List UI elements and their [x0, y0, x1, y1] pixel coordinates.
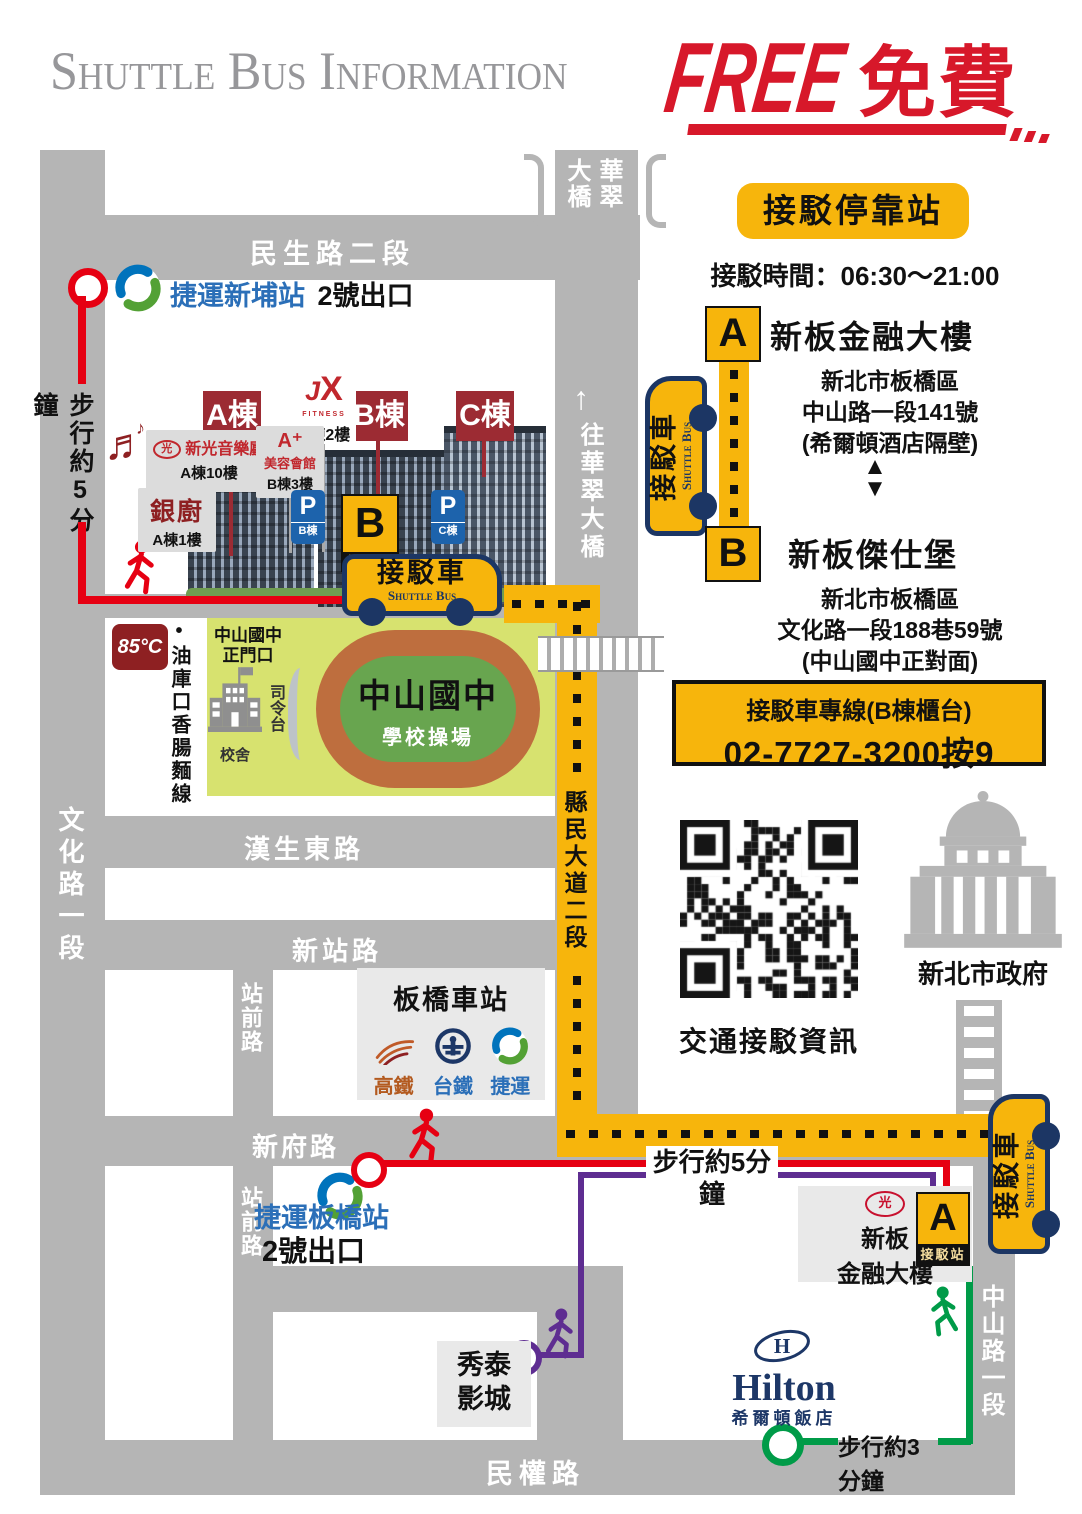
silver-kitchen-label: 銀廚 A棟1樓	[138, 488, 216, 552]
sign-stem	[482, 441, 486, 477]
route-dots	[573, 602, 581, 786]
tower-c-sign: C棟	[456, 391, 514, 441]
walk-5min-mid-label: 步行約5分鐘	[646, 1146, 778, 1178]
sausage-shop-label: •油庫口香腸麵線	[162, 620, 194, 820]
panel-stop-a-sign: A	[705, 306, 761, 362]
bridge-label-left: 大橋	[566, 158, 594, 216]
route-green-end	[762, 1424, 804, 1466]
banqiao-station-box: 板橋車站 高鐵 台鐵 捷運	[357, 968, 545, 1100]
to-bridge-label: 往華翠大橋	[577, 422, 607, 580]
mrt-xinpu-row: 捷運新埔站 2號出口	[170, 274, 413, 313]
stop-b-addr3: (中山國中正對面)	[740, 646, 1040, 677]
hsr-label: 高鐵	[372, 1070, 416, 1099]
mrt-xinpu-exit: 2號出口	[317, 281, 413, 311]
route-purple	[584, 1172, 646, 1178]
mrt-banqiao-exit: 2號出口	[262, 1228, 402, 1270]
school-stage-label: 司令台	[267, 684, 287, 758]
road-label-zhanqian-1: 站前路	[242, 982, 266, 1066]
route-purple	[778, 1172, 936, 1178]
silver-kitchen-name: 銀廚	[138, 492, 216, 528]
jx-logo-j: J	[305, 376, 320, 406]
hotline-box: 接駁車專線(B棟櫃台) 02-7727-3200按9	[672, 680, 1046, 766]
panel-stop-a-address: 新北市板橋區 中山路一段141號 (希爾頓酒店隔壁)	[750, 366, 1030, 459]
road-label-wenhua: 文化路一段	[57, 806, 89, 996]
route-green	[938, 1438, 971, 1445]
parking-sign-b: P B棟	[291, 490, 325, 544]
bus-label: 接駁車 Shuttle Bus	[994, 1094, 1036, 1254]
metro-item: 捷運	[490, 1027, 530, 1099]
stop-b-addr1: 新北市板橋區	[740, 584, 1040, 615]
route-dots	[566, 1130, 1008, 1138]
xiutai-line2: 影城	[437, 1383, 531, 1415]
tra-logo-icon	[434, 1027, 472, 1065]
hilton-logo-icon: H	[750, 1326, 814, 1370]
concert-hall-name: 新光音樂廳	[185, 441, 265, 458]
school-gate-line1: 中山國中	[210, 626, 286, 646]
bus-wheel-icon	[358, 598, 386, 626]
jx-fitness-word: FITNESS	[292, 411, 356, 418]
mrt-logo-icon	[114, 264, 162, 312]
mrt-xinpu-name: 捷運新埔站	[170, 281, 305, 311]
tra-item: 台鐵	[433, 1027, 473, 1099]
concert-hall-label: 光 新光音樂廳 A棟10樓	[146, 430, 272, 492]
school-gate-line2: 正門口	[210, 646, 286, 666]
route-red	[778, 1160, 950, 1167]
bus-label-en: Shuttle Bus	[342, 589, 502, 602]
shuttle-bus-icon: 接駁車 Shuttle Bus	[645, 376, 717, 536]
music-notes-icon: ♬♪	[104, 420, 148, 482]
walk-3min-label: 步行約3分鐘	[838, 1428, 942, 1496]
tower-b-sign: B棟	[350, 391, 408, 441]
beauty-name: 美容會館	[256, 453, 324, 472]
service-hours: 接駁時間：06:30～21:00	[688, 256, 1022, 293]
xiutai-cinema-box: 秀泰 影城	[437, 1341, 531, 1427]
hilton-name-zh: 希爾頓飯店	[718, 1404, 850, 1429]
panel-stop-b-sign: B	[705, 526, 761, 582]
school-gate-label: 中山國中 正門口	[210, 626, 286, 668]
concert-hall-floor: A棟10樓	[146, 462, 272, 483]
road-label-minquan: 民權路	[486, 1452, 585, 1491]
route-red	[78, 296, 86, 384]
shinkong-logo: 光	[865, 1191, 905, 1217]
free-tick	[1009, 128, 1022, 141]
route-red-start-xinpu	[68, 268, 108, 308]
bridge-bracket-icon	[646, 154, 666, 228]
bus-label-en: Shuttle Bus	[680, 376, 693, 536]
route-dots	[730, 370, 738, 520]
school-building-icon	[208, 666, 262, 744]
free-underline	[687, 124, 1007, 135]
85c-logo: 85°C	[112, 624, 168, 670]
stop-b-sign: B	[341, 494, 399, 554]
government-building-icon	[898, 788, 1068, 950]
shuttle-bus-poster: 文化路一段 民生路二段 華翠 大橋 ↑ 往華翠大橋 漢生東路 新站路 站前路 站…	[0, 0, 1082, 1514]
route-dots	[573, 976, 581, 1112]
silver-kitchen-floor: A棟1樓	[138, 529, 216, 550]
free-word-en: FREE	[660, 28, 850, 128]
road-label-minsheng: 民生路二段	[250, 232, 415, 271]
stop-a-sign: A	[916, 1192, 970, 1246]
crosswalk	[538, 636, 664, 672]
road-label-zhongshan: 中山路一段	[980, 1284, 1008, 1436]
hotline-title: 接駁車專線(B棟櫃台)	[676, 691, 1042, 726]
walking-person-icon	[534, 1308, 586, 1360]
government-label: 新北市政府	[890, 954, 1076, 991]
parking-b-floor: B棟	[291, 522, 325, 540]
hsr-logo-icon	[372, 1037, 416, 1065]
banqiao-station-title: 板橋車站	[357, 978, 545, 1017]
bus-wheel-icon	[1032, 1210, 1060, 1238]
tra-label: 台鐵	[433, 1070, 473, 1099]
bus-label-zh: 接駁車	[342, 560, 502, 587]
svg-text:H: H	[774, 1334, 790, 1358]
qr-code	[680, 820, 858, 998]
route-red-start-banqiao	[351, 1152, 387, 1188]
stop-a-strip: 接駁站	[916, 1244, 970, 1266]
panel-stop-b-name: 新板傑仕堡	[788, 530, 958, 576]
page-title: Shuttle Bus Information	[50, 40, 568, 102]
road-label-hansheng: 漢生東路	[244, 829, 364, 866]
hotline-number: 02-7727-3200按9	[676, 727, 1042, 775]
parking-c-floor: C棟	[431, 522, 465, 540]
track-infield: 中山國中 學校操場	[340, 656, 516, 762]
mrt-logo-icon	[491, 1027, 529, 1065]
xiutai-line1: 秀泰	[437, 1347, 531, 1383]
stop-a-addr3: (希爾頓酒店隔壁)	[750, 428, 1030, 459]
shuttle-bus-icon: 接駁車 Shuttle Bus	[988, 1094, 1060, 1254]
route-red	[80, 596, 360, 604]
bus-label: 接駁車 Shuttle Bus	[651, 376, 693, 536]
bridge-label-right: 華翠	[598, 158, 626, 216]
panel-stop-b-address: 新北市板橋區 文化路一段188巷59號 (中山國中正對面)	[740, 584, 1040, 677]
road-label-xinzhan: 新站路	[292, 931, 382, 968]
parking-p: P	[431, 490, 465, 522]
panel-stop-a-name: 新板金融大樓	[770, 312, 974, 358]
stage-shape	[288, 668, 313, 760]
hsr-item: 高鐵	[372, 1037, 416, 1099]
bus-label-en: Shuttle Bus	[1023, 1094, 1036, 1254]
metro-label: 捷運	[490, 1070, 530, 1099]
free-tick	[1038, 134, 1050, 143]
two-way-arrow-icon: ▲▼	[858, 456, 892, 500]
stops-badge: 接駁停靠站	[737, 183, 969, 239]
stop-b-addr2: 文化路一段188巷59號	[740, 615, 1040, 646]
road-label-xianmin: 縣民大道二段	[563, 790, 591, 970]
parking-sign-c: P C棟	[431, 490, 465, 544]
school-field-label: 學校操場	[382, 721, 474, 750]
bus-label-zh: 接駁車	[994, 1094, 1021, 1254]
road-connector	[233, 1266, 539, 1312]
free-tick	[1024, 131, 1036, 142]
to-bridge-arrow-icon: ↑	[573, 380, 589, 417]
route-dots	[512, 600, 596, 608]
bus-label: 接駁車 Shuttle Bus	[342, 560, 502, 602]
jx-logo-x: X	[320, 370, 343, 408]
stop-a-addr1: 新北市板橋區	[750, 366, 1030, 397]
beauty-mark: A⁺	[256, 428, 324, 453]
school-hall-label: 校舍	[210, 744, 260, 765]
road-label-xinfu: 新府路	[252, 1127, 339, 1164]
parking-p: P	[291, 490, 325, 522]
route-red	[78, 522, 86, 604]
school-name: 中山國中	[358, 669, 498, 717]
walking-person-icon	[396, 1108, 454, 1166]
running-track: 中山國中 學校操場	[316, 630, 540, 788]
bridge-bracket-icon	[524, 154, 544, 228]
shuttle-bus-icon: 接駁車 Shuttle Bus	[342, 554, 502, 626]
stop-a-addr2: 中山路一段141號	[750, 397, 1030, 428]
bus-label-zh: 接駁車	[651, 376, 678, 536]
qr-caption: 交通接駁資訊	[660, 1020, 878, 1060]
walking-person-icon	[918, 1286, 970, 1338]
shinkong-logo: 光	[153, 440, 181, 459]
bus-wheel-icon	[689, 492, 717, 520]
free-word-zh: 免費	[858, 44, 1018, 122]
beauty-salon-label: A⁺ 美容會館 B棟3樓	[256, 426, 324, 498]
